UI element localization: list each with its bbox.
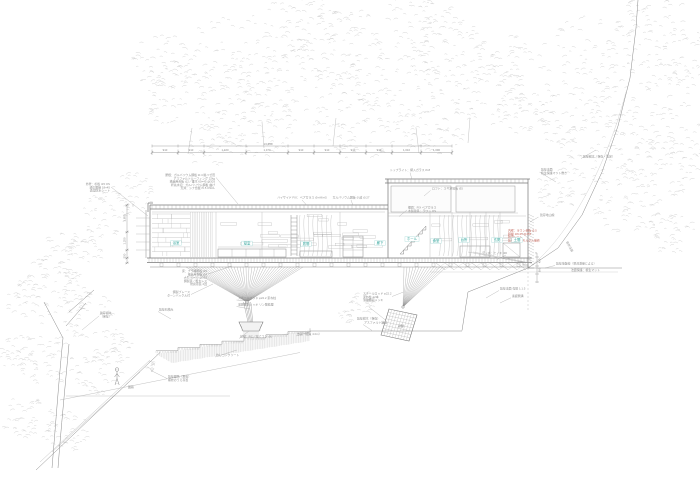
annotation-label: 基礎 [398,323,404,328]
foliage-cluster [189,124,234,165]
site-section-drawing: 9109101,4701,4709109109109101,0101,09013… [0,0,700,498]
annotation-label: ▽ [535,251,538,255]
person-figure [115,368,120,385]
room-label: 廊下 [377,240,384,245]
annotation-label: アスファルト舗装 [364,320,387,325]
room-label: 食堂 [433,238,440,243]
dimension-value: 910 [189,148,194,152]
foliage-cluster [189,16,289,96]
foliage-cluster [593,184,661,232]
dimension-value: 450 [538,258,542,263]
foliage-cluster [339,43,444,128]
foliage-cluster [132,35,197,87]
annotation-label: 外壁：杉板 t15 OS通気胴縁 18×45透湿防水シート [86,181,111,193]
annotation-label: 既存樹木（保存） [100,310,112,318]
annotation-label: 屋根：ガルバリウム鋼板 t0.4 縦ハゼ葺アスファルトルーフィング 22kg構造… [165,172,215,190]
dimension-value: 910 [377,148,382,152]
terraced-slope [150,326,312,364]
foliage-cluster [51,272,91,303]
dimension-value: 1,010 [403,148,410,152]
foliage-cluster [620,141,696,202]
foliage-cluster [94,330,134,363]
annotation-label: ロフト：スギ足場板 t35 [432,186,463,191]
dimension-value: 910 [325,148,330,152]
dimension-value: 910 [299,148,304,152]
foliage-cluster [148,56,231,132]
foliage-cluster [650,214,695,253]
dimension-value: 1,470 [222,148,229,152]
annotation-label: 既存石積み [159,307,174,312]
foliage-cluster [220,99,292,157]
annotation-label: 既存法面植生保護マット敷き [541,167,567,175]
annotation-label: 鋼製ブレースターンバックル付 [167,289,190,297]
dimension-value: 600 [538,267,542,272]
foliage-cluster [0,335,35,366]
foliage-cluster [265,0,343,51]
dimension-total: 13,650 [263,142,273,146]
room-label: ホール [407,236,418,241]
annotation-label: 市道（幅員 4.0m） [297,331,322,336]
foliage-cluster [16,336,74,383]
foliage-cluster [648,30,700,88]
dimension-value: 550 [123,253,127,258]
annotation-label: 床：ナラ縁甲板 t15構造用合板 t24大引 90×90 @910鋼製束／根太レ… [182,268,207,286]
annotation-label: 欄間：FIX ペアガラス木製建具：ラワン OS [408,205,436,213]
annotation-label: ハイサイド FIX：ペアガラス t5+A6+t5 [277,195,327,200]
annotation-label: 既存法面 [565,240,575,253]
foliage-cluster [45,412,90,451]
annotation-label: スチールロッド φ22.2束ね柱 12本溶融亜鉛メッキ [363,291,392,303]
foliage-cluster [2,399,55,438]
annotation-label: 溶融亜鉛メッキ リン酸処理 [238,302,274,307]
room-label: 浴室 [173,240,180,245]
annotation-label: スチールロッド φ22.2 束ね柱 [238,295,276,300]
dimension-value: 1,850 [123,214,127,221]
dimension-value: 910 [351,148,356,152]
annotation-label: 既存法面 勾配 1:1.5 [500,286,526,291]
annotation-label: 素掘側溝 [512,293,524,298]
annotation-label: デッキ：ヒノキ t30 [482,250,507,255]
annotation-label: ガルバリウム鋼板 小波 t0.27 [333,195,370,200]
annotation-labels: 屋根：ガルバリウム鋼板 t0.4 縦ハゼ葺アスファルトルーフィング 22kg構造… [86,154,615,390]
dimension-value: 910 [163,148,168,152]
annotation-label: 既存地山線 [540,212,555,217]
annotation-label: 既存樹木（保存・剪定） [583,154,615,159]
foliage-cluster [594,60,691,141]
annotation-label: 園路 [128,384,134,389]
clerestory-window-right [456,186,515,212]
annotation-label: 法面保護：植生マット [571,267,600,272]
room-label: 寝室 [244,241,251,246]
piloti-rod-supports [186,267,446,341]
foliage-cluster [538,16,638,104]
annotation-label: 既存地盤線（現況測量による） [556,261,596,266]
section-drawing-canvas: 9109101,4701,4709109109109101,0101,09013… [0,0,700,498]
annotation-label: 既存園路（飛石）補修のうえ存置 [168,374,191,382]
foliage-cluster [538,93,599,145]
annotation-label: 基礎：RC／捨てコン t50 [240,334,273,339]
foliage-cluster [83,192,131,235]
annotation-label: 均しコンクリート [216,352,239,357]
dimension-value: 1,250 [123,237,127,244]
plant-marker [150,367,154,372]
room-label: 居間 [303,241,310,246]
dimension-value: 1,090 [433,148,440,152]
dimension-value: 1,470 [264,148,271,152]
room-label: 台所 [461,237,468,242]
foliage-cluster [31,233,88,277]
foliage-cluster [338,310,354,324]
room-label: 玄関 [494,237,501,242]
foliage-cluster [497,93,547,133]
annotation-label: トップライト：網入ガラス t6.8 [390,167,431,172]
room-label: 土間 [514,237,521,242]
